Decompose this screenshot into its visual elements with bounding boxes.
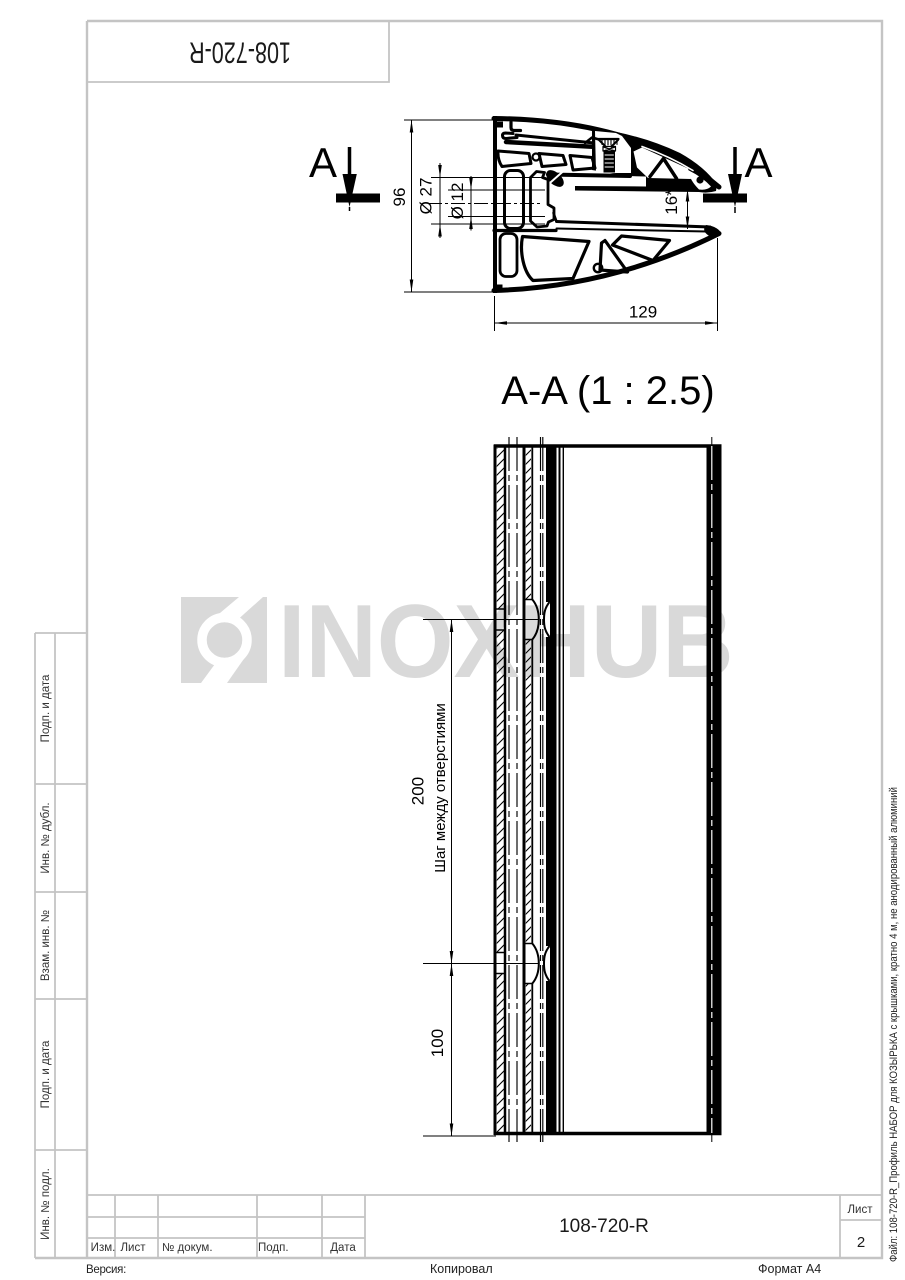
svg-text:A-A (1 : 2.5): A-A (1 : 2.5) — [501, 369, 714, 413]
svg-text:100: 100 — [428, 1029, 447, 1057]
svg-text:Ø 27: Ø 27 — [417, 178, 436, 215]
svg-text:Копировал: Копировал — [430, 1262, 493, 1276]
svg-text:16*: 16* — [662, 189, 681, 215]
svg-text:Инв. № подл.: Инв. № подл. — [40, 1168, 52, 1240]
svg-text:A: A — [309, 139, 337, 186]
svg-text:108-720-R: 108-720-R — [189, 36, 291, 70]
svg-text:108-720-R: 108-720-R — [559, 1216, 649, 1237]
svg-text:Подп. и дата: Подп. и дата — [40, 674, 52, 742]
svg-text:A: A — [744, 139, 772, 186]
svg-text:2: 2 — [857, 1234, 865, 1251]
svg-text:Подп.: Подп. — [258, 1242, 289, 1254]
svg-text:Дата: Дата — [330, 1242, 356, 1254]
svg-text:Формат A4: Формат A4 — [758, 1262, 821, 1276]
svg-text:Подп. и дата: Подп. и дата — [40, 1040, 52, 1108]
svg-text:Файл: 108-720-R_Профиль НАБОР: Файл: 108-720-R_Профиль НАБОР для КОЗЫРЬ… — [887, 787, 900, 1262]
svg-text:Версия:: Версия: — [86, 1264, 126, 1276]
svg-text:Лист: Лист — [848, 1204, 874, 1216]
svg-text:Изм.: Изм. — [91, 1242, 116, 1254]
svg-text:№ докум.: № докум. — [162, 1242, 213, 1254]
svg-text:Взам. инв. №: Взам. инв. № — [40, 910, 52, 981]
svg-text:129: 129 — [629, 303, 657, 322]
svg-text:96: 96 — [390, 188, 409, 207]
svg-text:Ø 12: Ø 12 — [448, 183, 467, 220]
svg-text:200: 200 — [409, 777, 428, 805]
svg-text:Шаг между отверстиями: Шаг между отверстиями — [432, 703, 449, 873]
svg-text:Инв. № дубл.: Инв. № дубл. — [40, 802, 52, 873]
svg-text:Лист: Лист — [121, 1242, 147, 1254]
